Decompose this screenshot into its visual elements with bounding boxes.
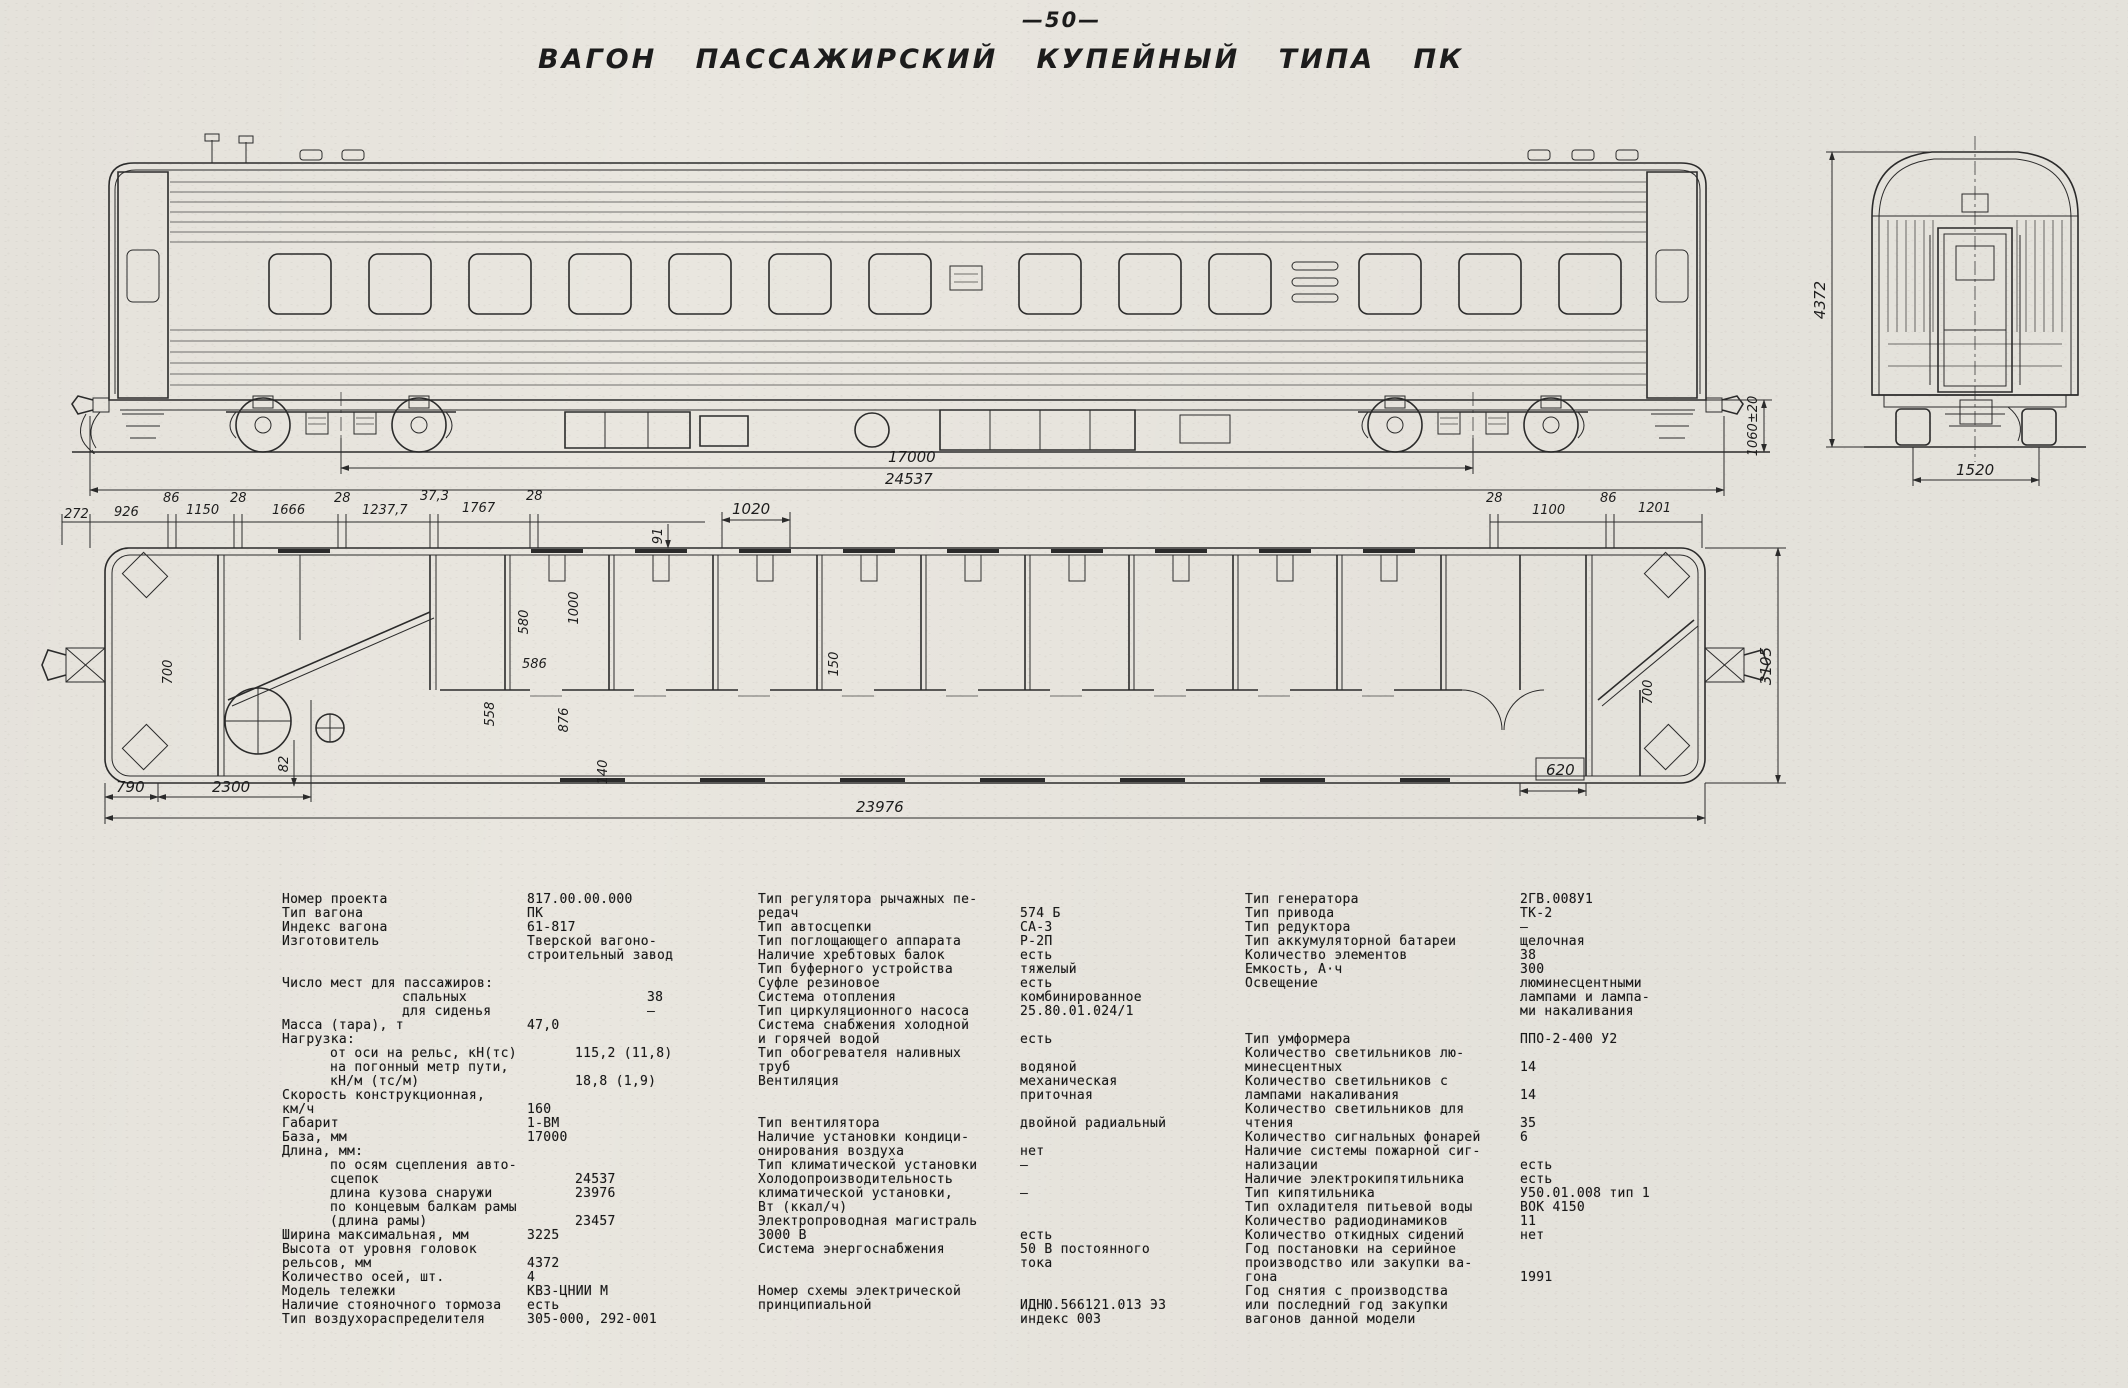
underframe-equipment: [565, 410, 1230, 450]
spec-value: 4: [527, 1271, 535, 1285]
spec-value: 38: [647, 991, 663, 1005]
plan-width-dimension: 3105: [1705, 548, 1786, 783]
spec-label: по концевым балкам рамы: [282, 1201, 575, 1215]
spec-label: вагонов данной модели: [1245, 1313, 1520, 1327]
spec-value: 3225: [527, 1229, 560, 1243]
spec-value: ИДНЮ.566121.013 Э3: [1020, 1299, 1166, 1313]
spec-row: Номер схемы электрической: [758, 1285, 1228, 1299]
spec-row: Тип воздухораспределителя305-000, 292-00…: [282, 1313, 782, 1327]
spec-label: на погонный метр пути,: [282, 1061, 575, 1075]
spec-label: Наличие стояночного тормоза: [282, 1299, 527, 1313]
spec-row: Высота от уровня головок: [282, 1243, 782, 1257]
spec-value: лампами и лампа-: [1520, 991, 1650, 1005]
dimension-label: 272: [64, 507, 89, 522]
spec-label: Система отопления: [758, 991, 1020, 1005]
spec-row: Индекс вагона61-817: [282, 921, 782, 935]
spec-value: 24537: [575, 1173, 616, 1187]
spec-row: Тип кипятильникаУ50.01.008 тип 1: [1245, 1187, 1715, 1201]
spec-value: 817.00.00.000: [527, 893, 633, 907]
spec-row: Количество сигнальных фонарей6: [1245, 1131, 1715, 1145]
spec-label: Количество сигнальных фонарей: [1245, 1131, 1520, 1145]
spec-value: 14: [1520, 1061, 1536, 1075]
side-right-door: [1647, 172, 1697, 438]
dimension-label: 23976: [856, 798, 904, 816]
spec-value: 47,0: [527, 1019, 560, 1033]
spec-row: Наличие хребтовых балокесть: [758, 949, 1228, 963]
spec-row: онирования воздуханет: [758, 1145, 1228, 1159]
spec-label: Количество светильников для: [1245, 1103, 1520, 1117]
spec-label: Система снабжения холодной: [758, 1019, 1020, 1033]
spec-value: комбинированное: [1020, 991, 1142, 1005]
spec-label: Количество светильников лю-: [1245, 1047, 1520, 1061]
spec-row: трубводяной: [758, 1061, 1228, 1075]
dimension-label: 28: [334, 491, 351, 506]
spec-label: Емкость, А·ч: [1245, 963, 1520, 977]
spec-label: Электропроводная магистраль: [758, 1215, 1020, 1229]
spec-label: Система энергоснабжения: [758, 1243, 1020, 1257]
roof-vents: [205, 134, 1638, 163]
spec-label: [758, 1313, 1020, 1327]
dimension-label: 1000: [567, 591, 582, 624]
spec-value: 305-000, 292-001: [527, 1313, 657, 1327]
spec-row: длина кузова снаружи23976: [282, 1187, 782, 1201]
spec-row: гона1991: [1245, 1271, 1715, 1285]
spec-label: Тип воздухораспределителя: [282, 1313, 527, 1327]
spec-value: есть: [1020, 1033, 1053, 1047]
spec-label: Вт (ккал/ч): [758, 1201, 1020, 1215]
side-dimensions: 17000 24537 1060±20: [90, 396, 1772, 496]
spec-label: Наличие системы пожарной сиг-: [1245, 1145, 1520, 1159]
spec-value: 17000: [527, 1131, 568, 1145]
spec-row: Тип регулятора рычажных пе-: [758, 893, 1228, 907]
dimension-label: 876: [557, 708, 572, 733]
spec-row: Тип циркуляционного насоса25.80.01.024/1: [758, 1005, 1228, 1019]
spec-label: Количество откидных сидений: [1245, 1229, 1520, 1243]
side-right-coupler: [1706, 396, 1743, 414]
spec-row: Количество светильников с: [1245, 1075, 1715, 1089]
spec-value: ми накаливания: [1520, 1005, 1634, 1019]
spec-value: 23976: [575, 1187, 616, 1201]
spec-value: люминесцентными: [1520, 977, 1642, 991]
spec-value: КВЗ-ЦНИИ М: [527, 1285, 608, 1299]
spec-label: Наличие электрокипятильника: [1245, 1173, 1520, 1187]
spec-row: Вентиляциямеханическая: [758, 1075, 1228, 1089]
dimension-label: 86: [163, 491, 180, 506]
spec-label: Тип регулятора рычажных пе-: [758, 893, 1020, 907]
spec-label: Тип привода: [1245, 907, 1520, 921]
spec-row: Тип редуктора—: [1245, 921, 1715, 935]
spec-value: есть: [1020, 1229, 1053, 1243]
dimension-label: 3105: [1757, 647, 1775, 685]
spec-label: Номер проекта: [282, 893, 527, 907]
spec-row: Система снабжения холодной: [758, 1019, 1228, 1033]
dimension-label: 28: [526, 489, 543, 504]
spec-value: 1-ВМ: [527, 1117, 560, 1131]
spec-value: —: [647, 1005, 655, 1019]
spec-row: нализацииесть: [1245, 1159, 1715, 1173]
spec-row: Тип вентиляторадвойной радиальный: [758, 1117, 1228, 1131]
spec-label: [282, 949, 527, 963]
plan-bottom-dimensions: 790 2300 82 620 23976: [105, 700, 1705, 824]
spec-label: (длина рамы): [282, 1215, 575, 1229]
spec-value: 2ГВ.008У1: [1520, 893, 1593, 907]
spec-row: чтения35: [1245, 1117, 1715, 1131]
spec-row: Количество элементов38: [1245, 949, 1715, 963]
spec-label: Длина, мм:: [282, 1145, 527, 1159]
dimension-label: 1150: [186, 503, 219, 518]
spec-value: 1991: [1520, 1271, 1553, 1285]
spec-label: Тип вагона: [282, 907, 527, 921]
spec-row: Система отоплениякомбинированное: [758, 991, 1228, 1005]
spec-value: нет: [1020, 1145, 1044, 1159]
spec-value: —: [1020, 1187, 1028, 1201]
spec-value: 300: [1520, 963, 1544, 977]
dimension-label: 1020: [732, 500, 770, 518]
dimension-label: 1237,7: [362, 503, 408, 518]
spec-row: ИзготовительТверской вагоно-: [282, 935, 782, 949]
spec-label: Тип поглощающего аппарата: [758, 935, 1020, 949]
spec-value: —: [1520, 921, 1528, 935]
dimension-label: 700: [1641, 680, 1656, 705]
spec-label: Тип редуктора: [1245, 921, 1520, 935]
dimension-label: 580: [517, 610, 532, 635]
spec-row: вагонов данной модели: [1245, 1313, 1715, 1327]
spec-row: для сиденья—: [282, 1005, 782, 1019]
plan-interior-dimensions: 580 1000 586 558 876 140 700 150 700: [161, 591, 1656, 784]
side-windows: [269, 254, 1621, 314]
spec-row: индекс 003: [758, 1313, 1228, 1327]
spec-label: онирования воздуха: [758, 1145, 1020, 1159]
spec-row: Суфле резиновоеесть: [758, 977, 1228, 991]
spec-label: Тип автосцепки: [758, 921, 1020, 935]
spec-row: лампами накаливания14: [1245, 1089, 1715, 1103]
spec-value: ПК: [527, 907, 543, 921]
spec-label: редач: [758, 907, 1020, 921]
spec-row: строительный завод: [282, 949, 782, 963]
spec-label: Год снятия с производства: [1245, 1285, 1520, 1299]
spec-row: Год постановки на серийное: [1245, 1243, 1715, 1257]
side-view-drawing: 17000 24537 1060±20: [72, 134, 1772, 496]
spec-row: Вт (ккал/ч): [758, 1201, 1228, 1215]
spec-row: и горячей водойесть: [758, 1033, 1228, 1047]
spec-label: Количество светильников с: [1245, 1075, 1520, 1089]
dimension-label: 1767: [462, 501, 496, 516]
plan-compartments: [278, 551, 1462, 780]
spec-value: У50.01.008 тип 1: [1520, 1187, 1650, 1201]
spec-row: климатической установки,—: [758, 1187, 1228, 1201]
spec-row: принципиальнойИДНЮ.566121.013 Э3: [758, 1299, 1228, 1313]
spec-value: есть: [1020, 977, 1053, 991]
spec-label: Суфле резиновое: [758, 977, 1020, 991]
spec-row: минесцентных14: [1245, 1061, 1715, 1075]
spec-row: Освещениелюминесцентными: [1245, 977, 1715, 991]
spec-label: Освещение: [1245, 977, 1520, 991]
spec-value: ВОК 4150: [1520, 1201, 1585, 1215]
spec-row: Тип генератора2ГВ.008У1: [1245, 893, 1715, 907]
spec-label: сцепок: [282, 1173, 575, 1187]
spec-row: Тип охладителя питьевой водыВОК 4150: [1245, 1201, 1715, 1215]
spec-label: для сиденья: [282, 1005, 647, 1019]
spec-label: Количество элементов: [1245, 949, 1520, 963]
spec-row: рельсов, мм4372: [282, 1257, 782, 1271]
spec-label: производство или закупки ва-: [1245, 1257, 1520, 1271]
spec-label: минесцентных: [1245, 1061, 1520, 1075]
side-number-plate: [950, 266, 982, 290]
dimension-label: 1520: [1956, 461, 1994, 479]
spec-row: по концевым балкам рамы: [282, 1201, 782, 1215]
spec-row: Наличие электрокипятильникаесть: [1245, 1173, 1715, 1187]
spec-row: Количество осей, шт.4: [282, 1271, 782, 1285]
spec-row: на погонный метр пути,: [282, 1061, 782, 1075]
spec-value: 38: [1520, 949, 1536, 963]
spec-row: Наличие стояночного тормозаесть: [282, 1299, 782, 1313]
plan-left-coupler: [42, 648, 105, 682]
spec-row: Тип автосцепкиСА-3: [758, 921, 1228, 935]
spec-row: сцепок24537: [282, 1173, 782, 1187]
spec-value: есть: [527, 1299, 560, 1313]
spec-label: Габарит: [282, 1117, 527, 1131]
spec-label: спальных: [282, 991, 647, 1005]
spec-label: труб: [758, 1061, 1020, 1075]
spec-value: 50 В постоянного: [1020, 1243, 1150, 1257]
spec-row: приточная: [758, 1089, 1228, 1103]
dimension-label: 1060±20: [1746, 396, 1761, 457]
spec-value: 160: [527, 1103, 551, 1117]
spec-value: двойной радиальный: [1020, 1117, 1166, 1131]
wagon-technical-drawing: 17000 24537 1060±20: [0, 0, 2128, 860]
dimension-label: 1666: [272, 503, 305, 518]
spec-label: [1245, 991, 1520, 1005]
spec-value: —: [1020, 1159, 1028, 1173]
spec-row: Масса (тара), т47,0: [282, 1019, 782, 1033]
dimension-label: 700: [161, 660, 176, 685]
dimension-label: 586: [522, 657, 547, 672]
spec-row: Количество светильников для: [1245, 1103, 1715, 1117]
spec-value: 574 Б: [1020, 907, 1061, 921]
spec-row: или последний год закупки: [1245, 1299, 1715, 1313]
spec-row: Система энергоснабжения50 В постоянного: [758, 1243, 1228, 1257]
spec-value: нет: [1520, 1229, 1544, 1243]
spec-row: Тип поглощающего аппаратаР-2П: [758, 935, 1228, 949]
spec-label: Тип генератора: [1245, 893, 1520, 907]
spec-value: 14: [1520, 1089, 1536, 1103]
dimension-label: 2300: [212, 778, 250, 796]
spec-label: климатической установки,: [758, 1187, 1020, 1201]
spec-row: Наличие установки кондици-: [758, 1131, 1228, 1145]
spec-value: 18,8 (1,9): [575, 1075, 656, 1089]
spec-row: Наличие системы пожарной сиг-: [1245, 1145, 1715, 1159]
spec-value: механическая: [1020, 1075, 1118, 1089]
dimension-label: 28: [1486, 491, 1503, 506]
spec-row: База, мм17000: [282, 1131, 782, 1145]
spec-label: Номер схемы электрической: [758, 1285, 1020, 1299]
spec-row: Тип аккумуляторной батареищелочная: [1245, 935, 1715, 949]
spec-label: Скорость конструкционная,: [282, 1089, 527, 1103]
spec-label: по осям сцепления авто-: [282, 1159, 575, 1173]
spec-value: ТК-2: [1520, 907, 1553, 921]
spec-row: Тип умформераППО-2-400 У2: [1245, 1033, 1715, 1047]
spec-label: Модель тележки: [282, 1285, 527, 1299]
spec-row: производство или закупки ва-: [1245, 1257, 1715, 1271]
spec-value: есть: [1020, 949, 1053, 963]
spec-label: длина кузова снаружи: [282, 1187, 575, 1201]
spec-row: 3000 Весть: [758, 1229, 1228, 1243]
spec-label: Тип климатической установки: [758, 1159, 1020, 1173]
spec-value: 11: [1520, 1215, 1536, 1229]
spec-label: Вентиляция: [758, 1075, 1020, 1089]
spec-label: [758, 1257, 1020, 1271]
spec-label: нализации: [1245, 1159, 1520, 1173]
spec-value: Р-2П: [1020, 935, 1053, 949]
spec-row: Тип климатической установки—: [758, 1159, 1228, 1173]
dimension-label: 926: [114, 505, 139, 520]
spec-label: Тип циркуляционного насоса: [758, 1005, 1020, 1019]
spec-row: Тип буферного устройстватяжелый: [758, 963, 1228, 977]
spec-value: 35: [1520, 1117, 1536, 1131]
spec-row: Модель тележкиКВЗ-ЦНИИ М: [282, 1285, 782, 1299]
dimension-label: 91: [651, 528, 666, 545]
spec-label: База, мм: [282, 1131, 527, 1145]
dimension-label: 28: [230, 491, 247, 506]
spec-label: Нагрузка:: [282, 1033, 527, 1047]
spec-value: есть: [1520, 1173, 1553, 1187]
plan-top-dimensions: 272 926 86 1150 28 1666 28 1237,7 37,3 1…: [62, 489, 1702, 548]
dimension-label: 150: [827, 652, 842, 677]
spec-label: Наличие хребтовых балок: [758, 949, 1020, 963]
spec-value: есть: [1520, 1159, 1553, 1173]
spec-row: Количество откидных сиденийнет: [1245, 1229, 1715, 1243]
dimension-label: 140: [596, 760, 611, 785]
spec-label: Тип кипятильника: [1245, 1187, 1520, 1201]
spec-column-1: Номер проекта817.00.00.000Тип вагонаПКИн…: [282, 893, 782, 1327]
end-view-drawing: 4372 1520: [1811, 136, 2086, 486]
dimension-label: 17000: [888, 448, 936, 466]
spec-label: Количество радиодинамиков: [1245, 1215, 1520, 1229]
spec-value: строительный завод: [527, 949, 673, 963]
plan-right-service-area: [1462, 552, 1698, 776]
dimension-label: 82: [277, 756, 292, 773]
spec-label: рельсов, мм: [282, 1257, 527, 1271]
spec-label: принципиальной: [758, 1299, 1020, 1313]
spec-row: Холодопроизводительность: [758, 1173, 1228, 1187]
spec-label: Тип буферного устройства: [758, 963, 1020, 977]
dimension-label: 86: [1600, 491, 1617, 506]
spec-row: спальных38: [282, 991, 782, 1005]
spec-row: Ширина максимальная, мм3225: [282, 1229, 782, 1243]
spec-value: индекс 003: [1020, 1313, 1101, 1327]
spec-value: щелочная: [1520, 935, 1585, 949]
spec-label: Тип умформера: [1245, 1033, 1520, 1047]
spec-value: Тверской вагоно-: [527, 935, 657, 949]
spec-label: чтения: [1245, 1117, 1520, 1131]
spec-row: ми накаливания: [1245, 1005, 1715, 1019]
dimension-label: 558: [483, 702, 498, 727]
spec-row: Количество светильников лю-: [1245, 1047, 1715, 1061]
spec-row: Габарит1-ВМ: [282, 1117, 782, 1131]
spec-label: кН/м (тс/м): [282, 1075, 575, 1089]
spec-row: Тип приводаТК-2: [1245, 907, 1715, 921]
spec-row: Номер проекта817.00.00.000: [282, 893, 782, 907]
spec-row: кН/м (тс/м)18,8 (1,9): [282, 1075, 782, 1089]
spec-value: 25.80.01.024/1: [1020, 1005, 1134, 1019]
spec-label: или последний год закупки: [1245, 1299, 1520, 1313]
spec-value: тока: [1020, 1257, 1053, 1271]
spec-label: Индекс вагона: [282, 921, 527, 935]
dimension-label: 1100: [1532, 503, 1565, 518]
spec-label: Количество осей, шт.: [282, 1271, 527, 1285]
dimension-label: 1201: [1638, 501, 1671, 516]
plan-view-drawing: 272 926 86 1150 28 1666 28 1237,7 37,3 1…: [42, 489, 1786, 824]
spec-value: 23457: [575, 1215, 616, 1229]
spec-column-2: Тип регулятора рычажных пе-редач574 БТип…: [758, 893, 1228, 1327]
spec-label: Ширина максимальная, мм: [282, 1229, 527, 1243]
spec-label: гона: [1245, 1271, 1520, 1285]
spec-row: Год снятия с производства: [1245, 1285, 1715, 1299]
spec-label: лампами накаливания: [1245, 1089, 1520, 1103]
spec-label: Изготовитель: [282, 935, 527, 949]
spec-value: 115,2 (11,8): [575, 1047, 673, 1061]
spec-value: СА-3: [1020, 921, 1053, 935]
spec-label: Тип вентилятора: [758, 1117, 1020, 1131]
spec-label: Наличие установки кондици-: [758, 1131, 1020, 1145]
spec-label: Холодопроизводительность: [758, 1173, 1020, 1187]
spec-row: Количество радиодинамиков11: [1245, 1215, 1715, 1229]
spec-label: [758, 1089, 1020, 1103]
spec-value: 61-817: [527, 921, 576, 935]
spec-row: тока: [758, 1257, 1228, 1271]
spec-row: Длина, мм:: [282, 1145, 782, 1159]
spec-row: лампами и лампа-: [1245, 991, 1715, 1005]
spec-row: км/ч160: [282, 1103, 782, 1117]
spec-column-3: Тип генератора2ГВ.008У1Тип приводаТК-2Ти…: [1245, 893, 1715, 1327]
spec-label: Тип аккумуляторной батареи: [1245, 935, 1520, 949]
spec-row: редач574 Б: [758, 907, 1228, 921]
spec-label: Высота от уровня головок: [282, 1243, 527, 1257]
dimension-label: 4372: [1811, 281, 1829, 319]
spec-value: водяной: [1020, 1061, 1077, 1075]
spec-label: Масса (тара), т: [282, 1019, 527, 1033]
spec-row: (длина рамы)23457: [282, 1215, 782, 1229]
spec-value: приточная: [1020, 1089, 1093, 1103]
side-left-door: [118, 172, 168, 438]
spec-row: Тип вагонаПК: [282, 907, 782, 921]
spec-label: и горячей водой: [758, 1033, 1020, 1047]
spec-label: Тип обогревателя наливных: [758, 1047, 1020, 1061]
spec-row: Нагрузка:: [282, 1033, 782, 1047]
spec-value: 6: [1520, 1131, 1528, 1145]
spec-row: Число мест для пассажиров:: [282, 977, 782, 991]
spec-row: Электропроводная магистраль: [758, 1215, 1228, 1229]
spec-label: [1245, 1005, 1520, 1019]
spec-row: Тип обогревателя наливных: [758, 1047, 1228, 1061]
dimension-label: 790: [116, 778, 145, 796]
dimension-label: 620: [1546, 761, 1575, 779]
spec-value: тяжелый: [1020, 963, 1077, 977]
end-dimensions: 4372 1520: [1811, 152, 2039, 486]
spec-value: 4372: [527, 1257, 560, 1271]
spec-row: Емкость, А·ч300: [1245, 963, 1715, 977]
spec-row: от оси на рельс, кН(тс)115,2 (11,8): [282, 1047, 782, 1061]
spec-row: по осям сцепления авто-: [282, 1159, 782, 1173]
spec-label: 3000 В: [758, 1229, 1020, 1243]
dimension-label: 37,3: [420, 489, 449, 504]
spec-row: Скорость конструкционная,: [282, 1089, 782, 1103]
spec-label: Тип охладителя питьевой воды: [1245, 1201, 1520, 1215]
scanned-catalog-page: —50— ВАГОН ПАССАЖИРСКИЙ КУПЕЙНЫЙ ТИПА ПК: [0, 0, 2128, 1388]
spec-label: Число мест для пассажиров:: [282, 977, 527, 991]
spec-label: от оси на рельс, кН(тс): [282, 1047, 575, 1061]
spec-label: Год постановки на серийное: [1245, 1243, 1520, 1257]
